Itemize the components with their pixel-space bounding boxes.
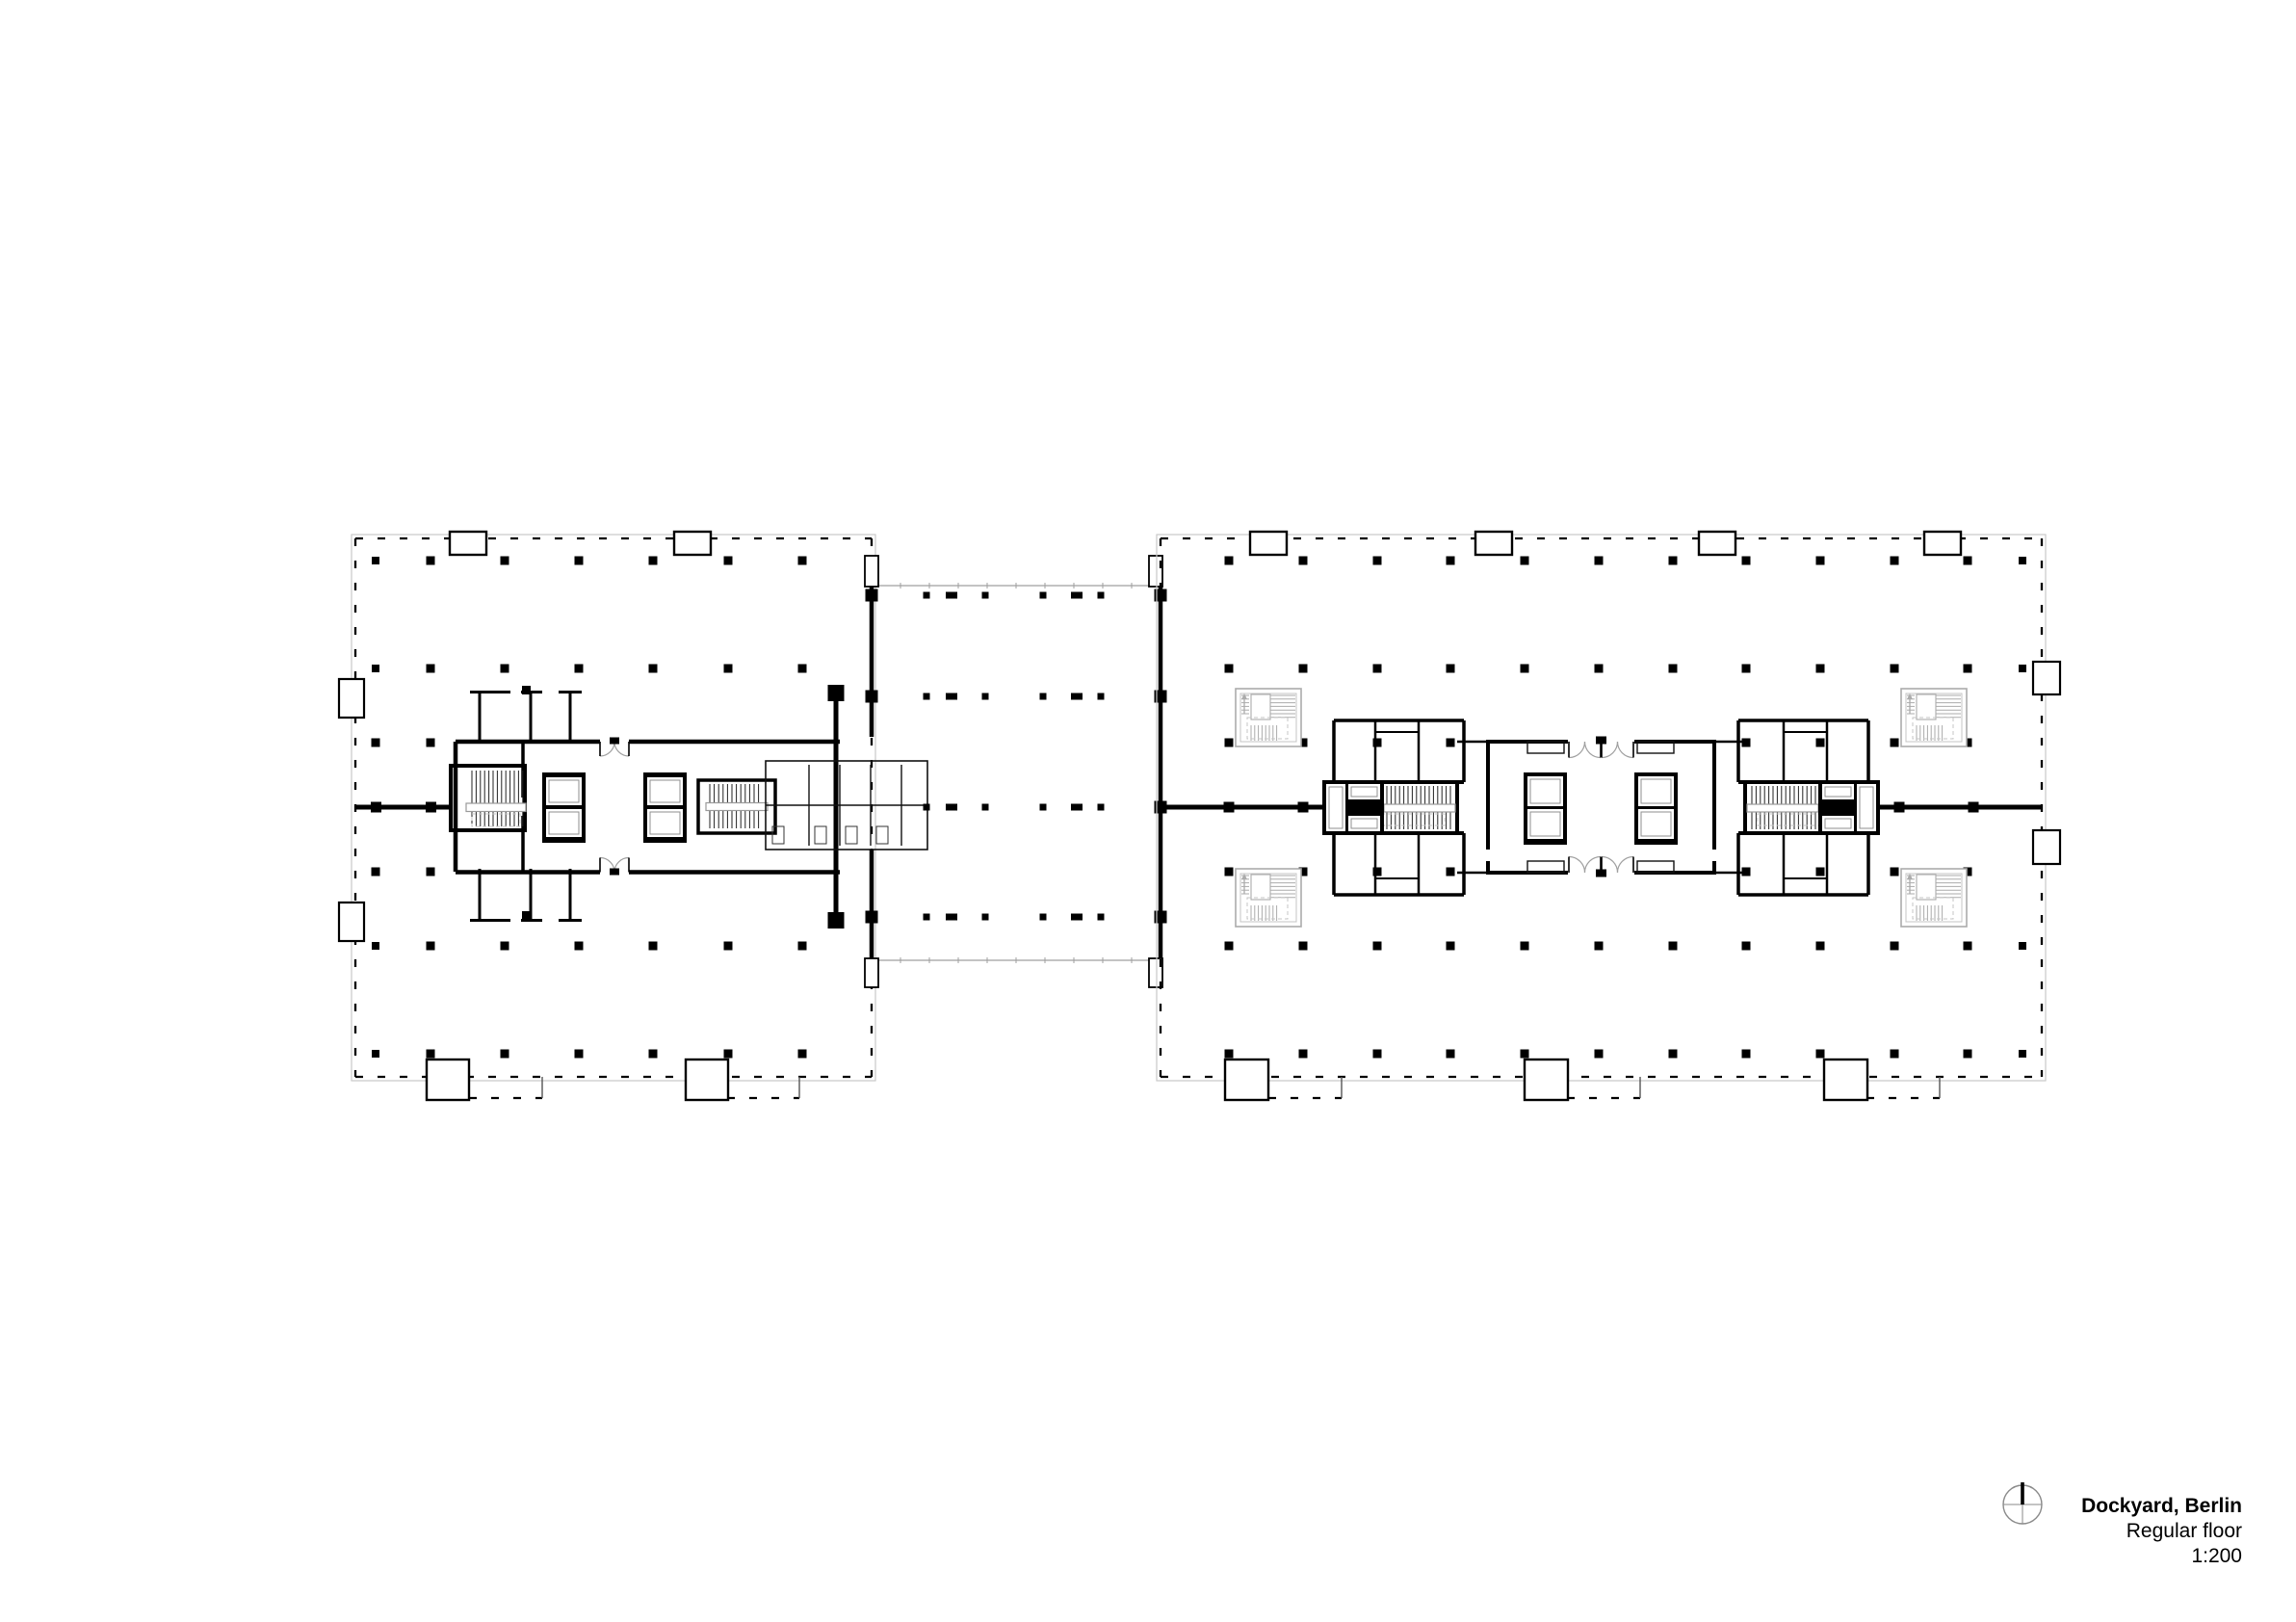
elevator-shaft — [1634, 772, 1678, 845]
north-arrow-icon — [2003, 1482, 2042, 1524]
scale-label: 1:200 — [2191, 1545, 2242, 1567]
sheet-name: Regular floor — [2126, 1520, 2242, 1542]
core-left-wing — [355, 685, 927, 929]
double-door — [1569, 737, 1633, 877]
bridge-edges — [872, 583, 1161, 963]
corner-stair — [1236, 689, 1301, 746]
stair — [451, 766, 526, 830]
curtain-wall — [1161, 538, 2042, 1098]
core-rooms — [1334, 833, 1464, 895]
corner-stair — [1236, 869, 1301, 927]
core-left — [1161, 720, 1489, 895]
elevator-bank — [1322, 780, 1384, 835]
left-wing — [339, 532, 927, 1100]
core-rooms — [1334, 720, 1464, 782]
double-door — [600, 738, 629, 876]
core-rooms — [1738, 833, 1868, 895]
drawing-sheet: Dockyard, Berlin Regular floor 1:200 — [0, 0, 2296, 1622]
core-rooms — [1738, 720, 1868, 782]
floor-plan: Dockyard, Berlin Regular floor 1:200 — [0, 0, 2296, 1622]
elevator-bank — [643, 772, 687, 843]
right-wing — [1157, 532, 2060, 1100]
link-bridge — [865, 556, 1167, 987]
bridge-walls — [865, 556, 1167, 987]
elevator-bank — [1818, 780, 1880, 835]
wc-cluster — [766, 761, 927, 850]
title-block: Dockyard, Berlin Regular floor 1:200 — [2003, 1482, 2242, 1567]
central-elevator-lobby — [1488, 737, 1716, 877]
core-right — [1713, 720, 2042, 895]
elevator-shaft — [1524, 772, 1567, 845]
corner-stair — [1901, 869, 1967, 927]
bridge-columns — [924, 592, 1105, 921]
stair — [698, 780, 775, 833]
project-name: Dockyard, Berlin — [2081, 1495, 2242, 1517]
curtain-wall — [355, 538, 872, 1098]
elevator-bank — [542, 772, 586, 843]
corner-stair — [1901, 689, 1967, 746]
